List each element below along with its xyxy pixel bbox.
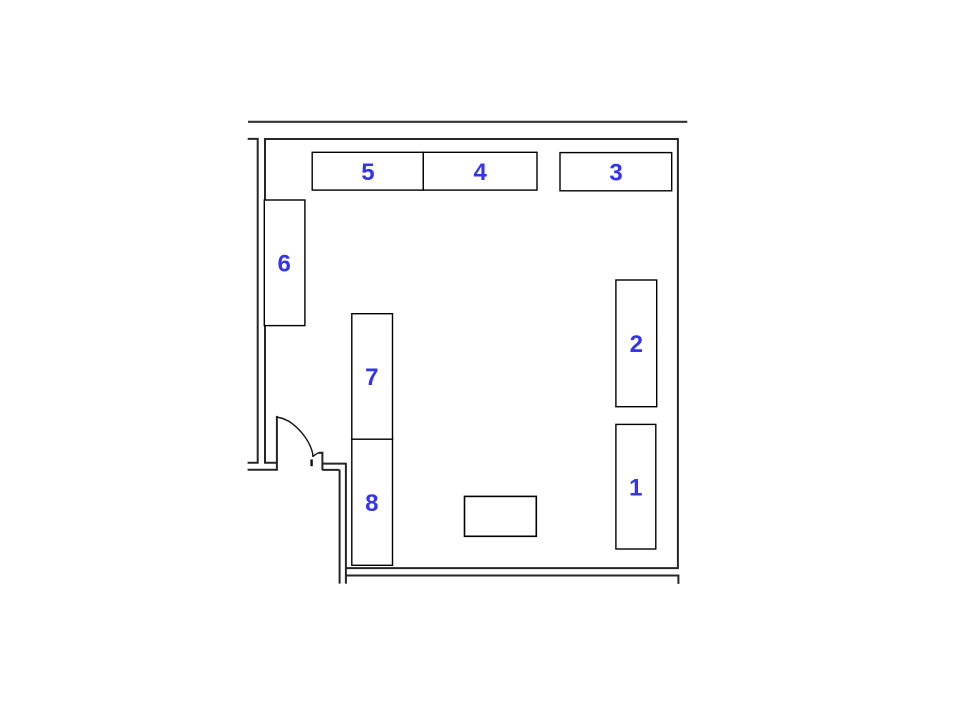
svg-text:1: 1: [629, 474, 642, 501]
svg-text:6: 6: [278, 251, 291, 278]
svg-text:7: 7: [365, 364, 378, 391]
svg-text:5: 5: [361, 159, 374, 186]
svg-text:2: 2: [630, 331, 643, 358]
svg-text:4: 4: [474, 159, 488, 186]
svg-text:8: 8: [365, 490, 378, 517]
svg-text:3: 3: [609, 159, 622, 186]
